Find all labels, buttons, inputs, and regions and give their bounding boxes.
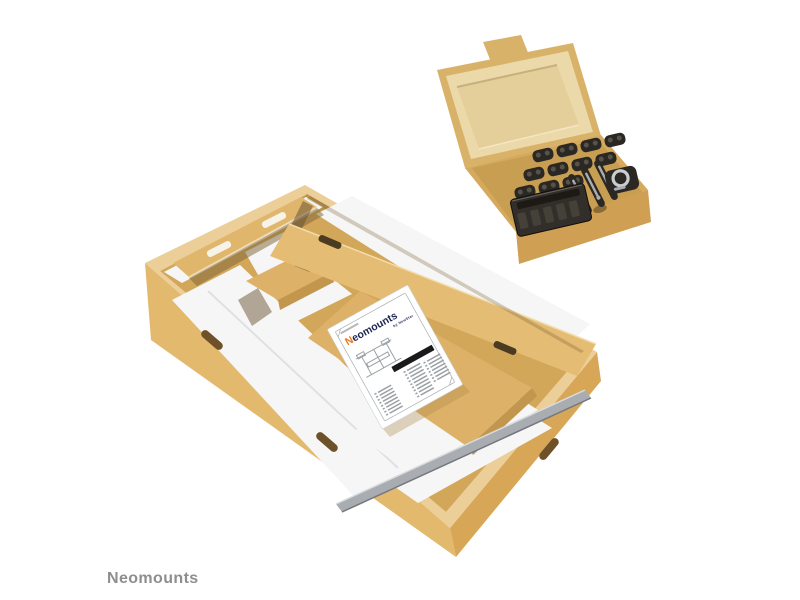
accessories-box <box>437 35 651 264</box>
brand-watermark: Neomounts <box>107 570 199 588</box>
product-photo: N eomounts by NewStar <box>0 0 800 600</box>
packaging-scene: N eomounts by NewStar <box>0 0 800 600</box>
screw-slot <box>603 132 626 148</box>
